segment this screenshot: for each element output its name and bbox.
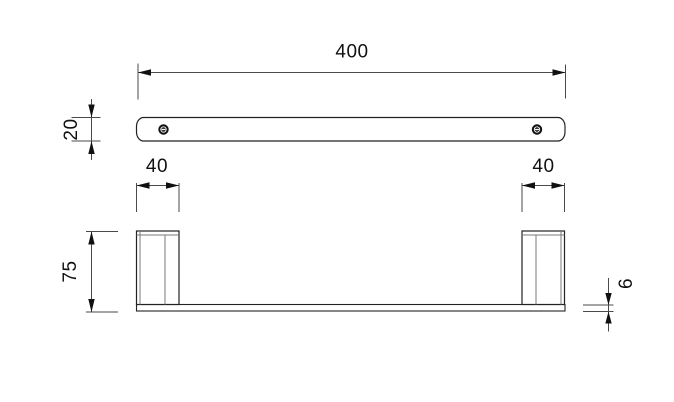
dim-post-width-left: 40 bbox=[137, 156, 180, 212]
arrowhead-up bbox=[605, 312, 611, 324]
right-post-outline bbox=[522, 231, 565, 305]
arrowhead-left bbox=[138, 69, 151, 75]
dim-label-post-width-right: 40 bbox=[532, 156, 554, 177]
towel-rail-drawing: 400 20 40 40 bbox=[0, 0, 674, 402]
arrowhead-down bbox=[88, 105, 94, 118]
top-view bbox=[137, 118, 566, 142]
arrowhead-left bbox=[137, 182, 150, 188]
dim-post-width-right: 40 bbox=[522, 156, 565, 212]
left-post-outline bbox=[137, 231, 180, 305]
rail-outline bbox=[137, 305, 566, 312]
dim-bar-depth: 20 bbox=[61, 99, 101, 160]
front-view bbox=[137, 231, 566, 311]
dim-label-overall-length: 400 bbox=[335, 42, 368, 63]
arrowhead-down bbox=[605, 293, 611, 305]
technical-drawing-page: 400 20 40 40 bbox=[0, 0, 674, 402]
bar-outline bbox=[137, 118, 566, 142]
dim-overall-length: 400 bbox=[138, 42, 566, 100]
dim-rail-thickness: 6 bbox=[583, 278, 637, 332]
dim-label-post-height: 75 bbox=[60, 260, 81, 282]
dim-label-rail-thickness: 6 bbox=[616, 278, 637, 289]
screw-head-icon bbox=[158, 124, 168, 134]
arrowhead-up bbox=[88, 232, 94, 245]
right-post bbox=[522, 231, 565, 305]
arrowhead-right bbox=[166, 182, 179, 188]
screw-head-icon bbox=[532, 124, 542, 134]
dim-post-height: 75 bbox=[60, 232, 118, 313]
dim-label-bar-depth: 20 bbox=[61, 118, 82, 140]
left-post bbox=[137, 231, 180, 305]
arrowhead-up bbox=[88, 141, 94, 154]
arrowhead-right bbox=[553, 69, 566, 75]
arrowhead-down bbox=[88, 299, 94, 312]
dim-label-post-width-left: 40 bbox=[146, 156, 168, 177]
arrowhead-right bbox=[552, 182, 565, 188]
arrowhead-left bbox=[522, 182, 535, 188]
